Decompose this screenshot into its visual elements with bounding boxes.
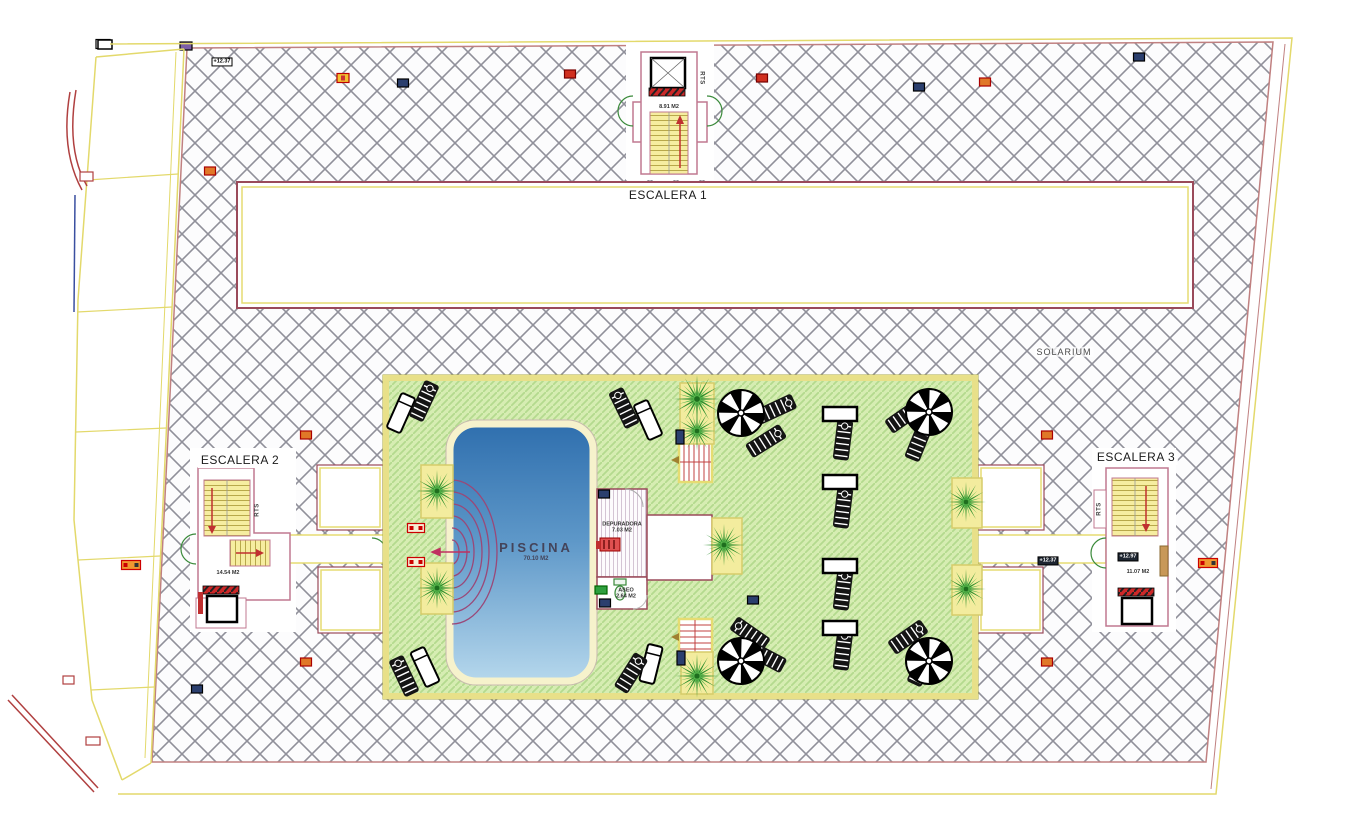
rts-label-3: RTS: [1097, 502, 1104, 516]
rts-label-1: RTS: [698, 71, 705, 85]
escalera2-label: ESCALERA 2: [198, 454, 282, 468]
marker-navy: [192, 685, 203, 693]
wtable: [823, 621, 857, 635]
marker-orange: [1042, 431, 1053, 439]
piscina-label: PISCINA 70.10 M2: [499, 541, 573, 563]
pump-machine-icon: [596, 538, 620, 551]
courtyard-opening: [237, 182, 1193, 308]
marker-orangeio: [122, 561, 141, 570]
marker-orange: [980, 78, 991, 86]
parasol: [906, 389, 952, 435]
piscina-area: 70.10 M2: [523, 556, 548, 563]
marker-red: [565, 70, 576, 78]
rts-label-2: RTS: [255, 503, 262, 517]
marker-orange: [301, 658, 312, 666]
marker-redio: [408, 524, 425, 533]
marker-red: [757, 74, 768, 82]
escalera1-label: ESCALERA 1: [629, 189, 707, 203]
stair-flight-1: [650, 112, 688, 174]
marker-orange: [1042, 658, 1053, 666]
marker-orangeio: [1199, 559, 1218, 568]
stair-flight-3: [1112, 478, 1158, 536]
marker-orange: [205, 167, 216, 175]
escalera3-label: ESCALERA 3: [1094, 451, 1178, 465]
marker-navy: [599, 490, 610, 498]
parasol: [906, 638, 952, 684]
escalera2-area: 14.54 M2: [217, 570, 240, 576]
skylight: [647, 515, 712, 580]
wtable: [823, 559, 857, 573]
marker-green: [595, 586, 607, 594]
elevator-1: [649, 58, 685, 96]
marker-navy: [748, 596, 759, 604]
solarium-label: SOLARIUM: [1034, 347, 1093, 357]
depuradora-area: 7.03 M2: [612, 528, 632, 534]
aseo-area: 2.64 M2: [616, 594, 636, 600]
parasol: [718, 390, 764, 436]
elevator-3: [1118, 588, 1154, 624]
escalera1-area: 8.91 M2: [659, 104, 679, 110]
marker-yellow: [337, 74, 349, 83]
marker-navy: [914, 83, 925, 91]
marker-navy: [1134, 53, 1145, 61]
elevation-badge-top-left: +12.37: [212, 57, 233, 66]
plan-linework: [0, 0, 1347, 825]
marker-navy: [398, 79, 409, 87]
marker-navy: [600, 599, 611, 607]
elevation-badge-escalera3: +12.97: [1118, 552, 1139, 561]
marker-redio: [408, 558, 425, 567]
stair-flight-2a: [204, 480, 250, 536]
depuradora-label: DEPURADORA 7.03 M2: [602, 522, 641, 535]
marker-navyv: [677, 651, 685, 665]
marker-navyv: [676, 430, 684, 444]
parasol: [718, 638, 764, 684]
aseo-label: ASEO 2.64 M2: [616, 588, 636, 601]
piscina-name: PISCINA: [499, 541, 573, 556]
wtable: [823, 407, 857, 421]
floor-plan-canvas: ESCALERA 1 ESCALERA 2 ESCALERA 3 SOLARIU…: [0, 0, 1347, 825]
escalera3-area: 11.07 M2: [1127, 569, 1150, 575]
elevation-badge-right: +12.37: [1038, 556, 1059, 565]
wtable: [823, 475, 857, 489]
marker-orange: [301, 431, 312, 439]
stair-flight-2b: [230, 540, 270, 566]
